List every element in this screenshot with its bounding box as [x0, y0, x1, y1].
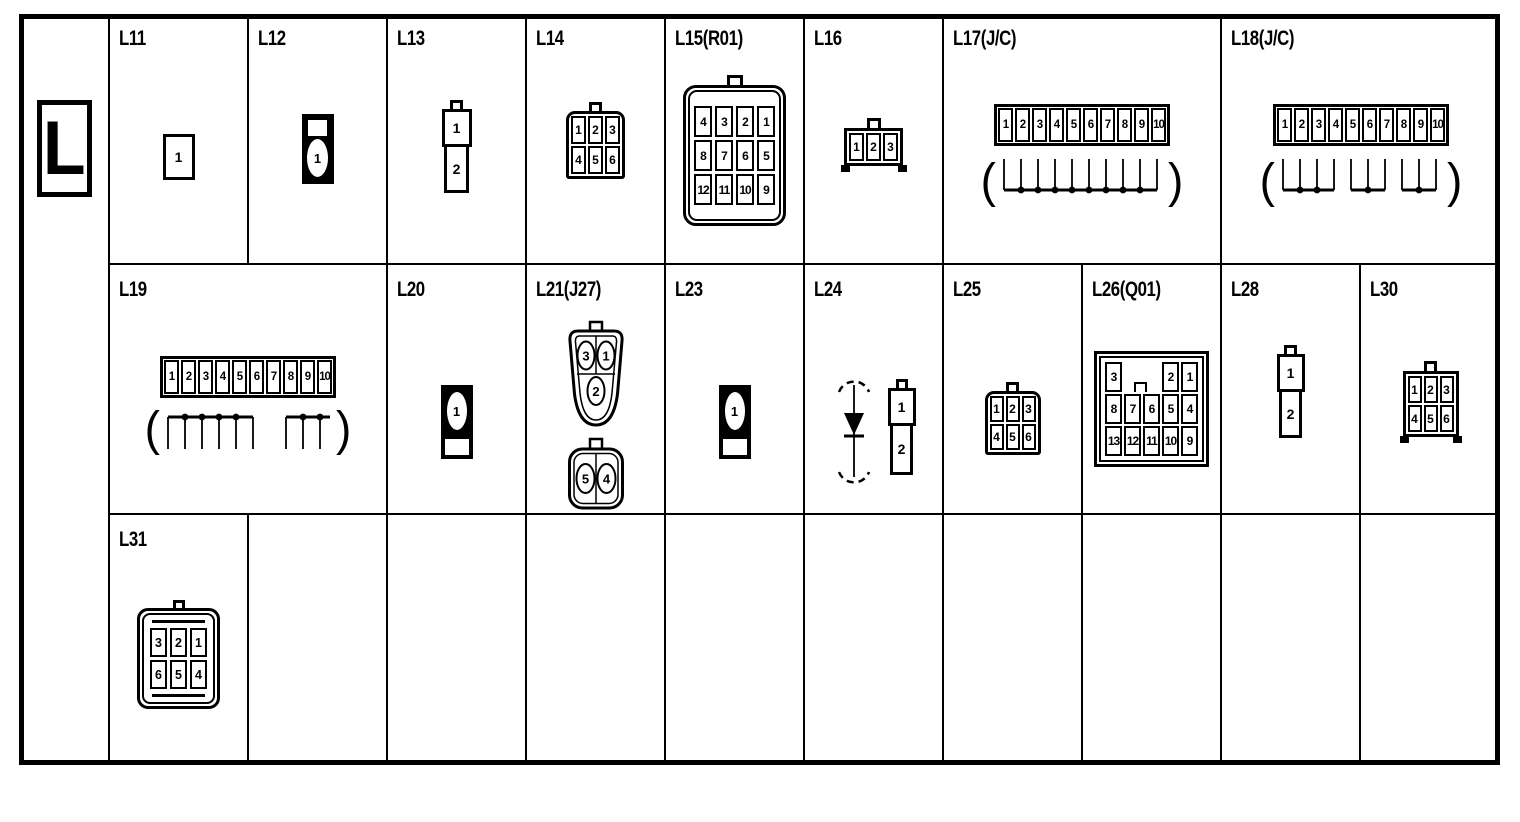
teardrop-housing: 3 1 2	[565, 320, 627, 430]
pin-box: 3	[883, 133, 898, 161]
pin-box: 10	[736, 174, 754, 205]
lock-tab	[867, 118, 881, 128]
terminal-slot	[445, 439, 469, 455]
bus-bar-diagram	[1275, 157, 1447, 203]
lock-tab	[450, 100, 463, 109]
pin-box: 1	[1277, 354, 1305, 392]
pin-box: 2	[1015, 108, 1030, 142]
pin-box: 4	[990, 424, 1004, 450]
pin-box: 1	[307, 139, 328, 177]
connector-drawing-L19: 1 2 3 4 5 6 7 8 9 10	[110, 356, 386, 398]
connector-label: L28	[1231, 278, 1259, 302]
pin-box: 3	[1311, 108, 1326, 142]
pin-box: 8	[1396, 108, 1411, 142]
lock-tab	[589, 102, 602, 111]
pin-box: 1	[447, 392, 467, 430]
cell-L16: L16 1 2 3	[805, 14, 944, 265]
pin-box: 3	[198, 360, 213, 394]
close-paren: )	[336, 404, 351, 452]
oval-housing: 5 4	[567, 437, 625, 511]
ten-pin-strip: 1 2 3 4 5 6 7 8 9 10	[994, 104, 1170, 146]
pin-box: 5	[1345, 108, 1360, 142]
pin-box: 11	[1143, 426, 1160, 456]
connector-drawing-L20: 1	[388, 385, 525, 459]
pin-grid: 4 3 2 1 8 7 6 5 12 11 10 9	[688, 90, 781, 221]
connector-label: L16	[814, 27, 842, 51]
keying-notch	[1134, 382, 1147, 392]
pin-box: 5	[170, 660, 187, 689]
pin-box: 12	[1124, 426, 1141, 456]
open-paren: (	[145, 404, 160, 452]
pin-box: 3	[1105, 362, 1122, 392]
twelve-pin-housing: 4 3 2 1 8 7 6 5 12 11 10 9	[683, 85, 786, 226]
pin-box: 3	[1440, 376, 1454, 403]
terminal-slot	[723, 439, 747, 455]
connector-label: L13	[397, 27, 425, 51]
pin-box: 12	[694, 174, 712, 205]
pin-box: 10	[1162, 426, 1179, 456]
pin-box: 1	[1181, 362, 1198, 392]
joint-connector-schematic: (	[110, 405, 386, 451]
pin-box: 5	[1066, 108, 1081, 142]
two-pin-connector: 1 2	[888, 379, 916, 475]
pin-box: 9	[1181, 426, 1198, 456]
pin-box: 4	[694, 106, 712, 137]
connector-index-sheet: L L11 1 L12 1 L13 1 2 L14	[0, 0, 1520, 822]
connector-label: L31	[119, 528, 147, 552]
connector-label: L25	[953, 278, 981, 302]
pin-box: 1	[1408, 376, 1422, 403]
pin-box: 1	[725, 392, 745, 430]
cell-L17: L17(J/C) 1 2 3 4 5 6 7 8 9 10 (	[944, 14, 1222, 265]
pin-box: 7	[1379, 108, 1394, 142]
connector-label: L21(J27)	[536, 278, 601, 302]
mount-feet	[1400, 436, 1462, 443]
lock-tab	[1006, 382, 1019, 391]
open-paren: (	[981, 156, 996, 204]
connector-label: L17(J/C)	[953, 27, 1016, 51]
section-letter-box: L	[37, 100, 92, 197]
pin-box: 2	[866, 133, 881, 161]
section-column: L	[19, 14, 110, 765]
ring-terminal-body: 1	[302, 114, 334, 184]
pin-box: 1	[164, 360, 179, 394]
cell-L11: L11 1	[110, 14, 249, 265]
lock-tab	[896, 379, 908, 388]
ten-pin-strip: 1 2 3 4 5 6 7 8 9 10	[1273, 104, 1449, 146]
pin-box: 7	[1100, 108, 1115, 142]
cell-L26: L26(Q01) 3 2 1 8 7 6 5 4 13 12 11	[1083, 265, 1222, 515]
section-letter: L	[43, 111, 86, 187]
connector-label: L19	[119, 278, 147, 302]
pin-box: 7	[1124, 394, 1141, 424]
connector-drawing-L21-top: 3 1 2	[527, 320, 664, 430]
pin-box: 10	[317, 360, 332, 394]
pin-box: 10	[1430, 108, 1445, 142]
connector-label: L14	[536, 27, 564, 51]
lock-tab	[727, 75, 743, 85]
pin-box: 6	[1440, 405, 1454, 432]
pin-box: 4	[215, 360, 230, 394]
six-pin-housing: 1 2 3 4 5 6	[1403, 371, 1459, 437]
pin-box: 2	[890, 426, 913, 475]
pin-box: 5	[1006, 424, 1020, 450]
pin-box: 6	[249, 360, 264, 394]
pin-box: 1	[998, 108, 1013, 142]
cell-L30: L30 1 2 3 4 5 6	[1361, 265, 1500, 515]
lock-tab	[173, 600, 185, 608]
connector-label: L15(R01)	[675, 27, 743, 51]
pin-box: 2	[444, 147, 469, 193]
connector-label: L26(Q01)	[1092, 278, 1161, 302]
pin-box: 9	[300, 360, 315, 394]
pin-box: 2	[1279, 392, 1302, 438]
pin-box: 8	[283, 360, 298, 394]
close-paren: )	[1168, 156, 1183, 204]
pin-box: 3	[715, 106, 733, 137]
connector-label: L11	[119, 27, 146, 51]
pin-box: 2	[1424, 376, 1438, 403]
connector-drawing-L16: 1 2 3	[805, 118, 942, 172]
pin-box: 2	[736, 106, 754, 137]
connector-drawing-L24: 1 2	[805, 375, 942, 489]
pin-box: 2	[1294, 108, 1309, 142]
connector-label: L23	[675, 278, 703, 302]
cell-L31: L31 3 2 1 6 5 4	[110, 515, 249, 765]
cell-L12: L12 1	[249, 14, 388, 265]
two-pin-connector: 1 2	[442, 100, 472, 193]
connector-drawing-L21-bottom: 5 4	[527, 437, 664, 511]
pin-box: 2	[181, 360, 196, 394]
pin-box: 10	[1151, 108, 1166, 142]
cell-empty	[1222, 515, 1361, 765]
connector-drawing-L23: 1	[666, 385, 803, 459]
joint-connector-schematic: (	[1222, 157, 1500, 203]
mount-foot	[1400, 436, 1409, 443]
pin-box: 3	[1032, 108, 1047, 142]
pin-box: 5	[581, 472, 588, 487]
mount-foot	[841, 165, 850, 172]
pin-box: 4	[1408, 405, 1422, 432]
connector-drawing-L31: 3 2 1 6 5 4	[110, 600, 247, 709]
cell-L23: L23 1	[666, 265, 805, 515]
mount-foot	[1453, 436, 1462, 443]
diode-symbol	[832, 375, 876, 489]
pin-box: 1	[602, 349, 609, 364]
cell-L28: L28 1 2	[1222, 265, 1361, 515]
pin-box: 1	[190, 628, 207, 657]
housing-band	[152, 694, 205, 697]
pin-box: 2	[588, 116, 603, 144]
cell-L25: L25 1 2 3 4 5 6	[944, 265, 1083, 515]
pin-box: 6	[1362, 108, 1377, 142]
cell-L15: L15(R01) 4 3 2 1 8 7 6 5 12 11 10 9	[666, 14, 805, 265]
pin-grid: 3 2 1 6 5 4	[142, 613, 215, 704]
lock-tab	[1424, 361, 1437, 371]
lock-tab	[1284, 345, 1297, 354]
cell-empty	[805, 515, 944, 765]
pin-box: 4	[602, 472, 610, 487]
pin-box: 4	[1181, 394, 1198, 424]
connector-drawing-L11: 1	[110, 134, 247, 180]
cell-empty	[666, 515, 805, 765]
six-pin-housing: 3 2 1 6 5 4	[137, 608, 220, 709]
open-paren: (	[1260, 156, 1275, 204]
ten-pin-strip: 1 2 3 4 5 6 7 8 9 10	[160, 356, 336, 398]
pin-box: 7	[266, 360, 281, 394]
connector-table: L L11 1 L12 1 L13 1 2 L14	[19, 14, 1500, 765]
cell-empty	[944, 515, 1083, 765]
bus-bar-diagram	[160, 405, 336, 451]
close-paren: )	[1447, 156, 1462, 204]
pin-box: 8	[1117, 108, 1132, 142]
pin-box: 1	[442, 109, 472, 147]
pin-box: 1	[1277, 108, 1292, 142]
connector-drawing-L14: 1 2 3 4 5 6	[527, 102, 664, 179]
pin-box: 3	[1022, 396, 1036, 422]
cell-empty	[1083, 515, 1222, 765]
connector-label: L18(J/C)	[1231, 27, 1294, 51]
connector-label: L20	[397, 278, 425, 302]
cell-L14: L14 1 2 3 4 5 6	[527, 14, 666, 265]
cell-empty	[527, 515, 666, 765]
cell-L18: L18(J/C) 1 2 3 4 5 6 7 8 9 10 (	[1222, 14, 1500, 265]
bus-bar-diagram	[996, 157, 1168, 203]
terminal-slot	[308, 120, 327, 136]
cell-L13: L13 1 2	[388, 14, 527, 265]
pin-box: 6	[1022, 424, 1036, 450]
pin-box: 13	[1105, 426, 1122, 456]
pin-box: 9	[1134, 108, 1149, 142]
pin-box: 3	[582, 349, 589, 364]
pin-box: 4	[190, 660, 207, 689]
pin-box: 3	[150, 628, 167, 657]
pin-box: 6	[605, 146, 620, 174]
pin-box: 4	[1328, 108, 1343, 142]
cell-empty	[388, 515, 527, 765]
pin-box: 9	[1413, 108, 1428, 142]
connector-drawing-L26: 3 2 1 8 7 6 5 4 13 12 11 10 9	[1083, 351, 1220, 467]
pin-box: 5	[232, 360, 247, 394]
pin-box: 5	[757, 140, 775, 171]
three-pin-housing: 1 2 3	[844, 128, 903, 166]
pin-box: 6	[1083, 108, 1098, 142]
cell-L20: L20 1	[388, 265, 527, 515]
connector-drawing-L28: 1 2	[1222, 345, 1359, 438]
pin-box: 6	[1143, 394, 1160, 424]
pin-box: 1	[990, 396, 1004, 422]
thirteen-pin-housing: 3 2 1 8 7 6 5 4 13 12 11 10 9	[1094, 351, 1209, 467]
connector-drawing-L17: 1 2 3 4 5 6 7 8 9 10	[944, 104, 1220, 146]
six-pin-housing: 1 2 3 4 5 6	[566, 111, 625, 179]
pin-box: 7	[715, 140, 733, 171]
pin-box: 9	[757, 174, 775, 205]
ring-terminal-body: 1	[441, 385, 473, 459]
cell-L21: L21(J27) 3 1 2	[527, 265, 666, 515]
connector-label: L30	[1370, 278, 1398, 302]
cell-L24: L24 1 2	[805, 265, 944, 515]
connector-label: L24	[814, 278, 842, 302]
connector-drawing-L25: 1 2 3 4 5 6	[944, 382, 1081, 455]
pin-box: 1	[163, 134, 195, 180]
cell-empty	[1361, 515, 1500, 765]
connector-label: L12	[258, 27, 286, 51]
pin-box: 2	[592, 384, 599, 399]
connector-drawing-L13: 1 2	[388, 100, 525, 193]
pin-box: 1	[888, 388, 916, 426]
pin-box: 8	[1105, 394, 1122, 424]
joint-connector-schematic: (	[944, 157, 1220, 203]
pin-grid: 3 2 1 8 7 6 5 4 13 12 11 10 9	[1099, 356, 1204, 462]
pin-box: 2	[1006, 396, 1020, 422]
pin-box: 1	[849, 133, 864, 161]
pin-box: 2	[1162, 362, 1179, 392]
cell-empty	[249, 515, 388, 765]
mount-feet	[841, 165, 907, 172]
pin-box: 3	[605, 116, 620, 144]
pin-box: 1	[757, 106, 775, 137]
connector-drawing-L18: 1 2 3 4 5 6 7 8 9 10	[1222, 104, 1500, 146]
connector-drawing-L12: 1	[249, 114, 386, 184]
cell-L19: L19 1 2 3 4 5 6 7 8 9 10 (	[110, 265, 388, 515]
pin-box: 6	[736, 140, 754, 171]
pin-box: 11	[715, 174, 733, 205]
mount-foot	[898, 165, 907, 172]
connector-drawing-L30: 1 2 3 4 5 6	[1361, 361, 1500, 443]
pin-box: 5	[588, 146, 603, 174]
two-pin-connector: 1 2	[1277, 345, 1305, 438]
pin-box: 4	[1049, 108, 1064, 142]
pin-box: 6	[150, 660, 167, 689]
connector-drawing-L15: 4 3 2 1 8 7 6 5 12 11 10 9	[666, 75, 803, 226]
housing-band	[152, 620, 205, 623]
pin-box: 5	[1162, 394, 1179, 424]
pin-box: 1	[571, 116, 586, 144]
pin-box: 8	[694, 140, 712, 171]
pin-box: 4	[571, 146, 586, 174]
six-pin-housing: 1 2 3 4 5 6	[985, 391, 1041, 455]
pin-box: 5	[1424, 405, 1438, 432]
ring-terminal-body: 1	[719, 385, 751, 459]
pin-box: 2	[170, 628, 187, 657]
